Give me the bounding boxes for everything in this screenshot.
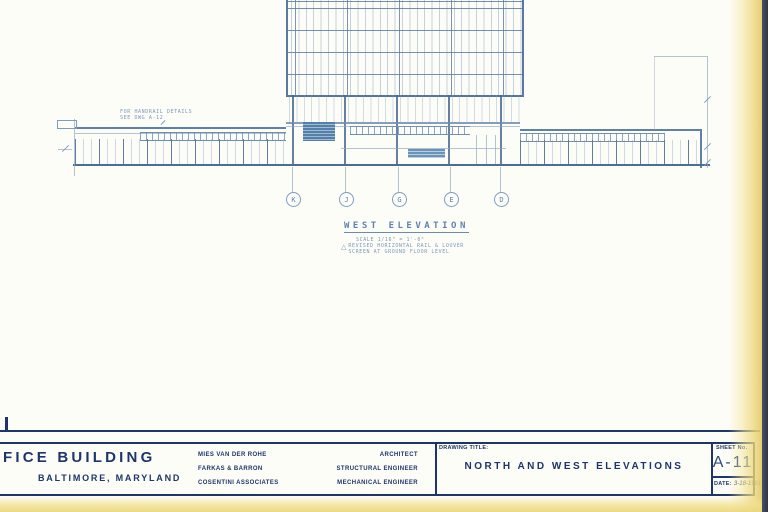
shaded-louver-panel	[408, 149, 445, 158]
podium-left-glazing	[75, 139, 286, 166]
title-block-bottom-border	[0, 494, 755, 496]
podium-right-glazing	[520, 140, 698, 166]
tower-column	[500, 95, 502, 165]
podium-left	[75, 127, 286, 168]
tower-column	[292, 95, 294, 165]
tower-column	[344, 95, 346, 165]
door-mullion	[476, 135, 477, 165]
grid-leader	[500, 167, 501, 192]
project-location: BALTIMORE, MARYLAND	[38, 473, 181, 483]
consultants-list: MIES VAN DER ROHE ARCHITECT FARKAS & BAR…	[198, 448, 418, 490]
drawing-title: NORTH AND WEST ELEVATIONS	[436, 461, 712, 472]
revision-triangle-icon: △	[341, 243, 346, 255]
grid-letter: G	[397, 196, 401, 204]
door-mullion	[495, 135, 496, 165]
west-elevation-drawing: FOR HANDRAIL DETAILS SEE DWG A-12 K J G …	[0, 0, 768, 430]
grid-letter: D	[499, 196, 503, 204]
consultant-name: COSENTINI ASSOCIATES	[198, 480, 279, 486]
sheet-border-rule	[0, 430, 760, 432]
scanned-drawing-sheet: { "drawing": { "elevation_title": "WEST …	[0, 0, 768, 512]
revision-note-line2: SCREEN AT GROUND FLOOR LEVEL	[348, 249, 464, 255]
consultant-role: MECHANICAL ENGINEER	[337, 480, 418, 486]
date-label: DATE:	[714, 481, 732, 487]
title-block: FICE BUILDING BALTIMORE, MARYLAND MIES V…	[0, 442, 755, 496]
consultant-role: ARCHITECT	[380, 452, 418, 458]
grid-leader	[398, 167, 399, 192]
sheet-number-label: SHEET No.	[716, 445, 747, 451]
grid-bubble-k: K	[286, 192, 301, 207]
right-ext-line	[654, 56, 655, 130]
sheet-number: A-11	[712, 454, 754, 472]
grid-leader	[345, 167, 346, 192]
page-edge-yellow-bottom	[0, 496, 768, 512]
grid-letter: J	[344, 196, 348, 204]
date-value: 3-18-1961	[734, 481, 761, 487]
consultant-row: FARKAS & BARRON STRUCTURAL ENGINEER	[198, 462, 418, 476]
grid-bubble-j: J	[339, 192, 354, 207]
revision-note: △ REVISED HORIZONTAL RAIL & LOUVER SCREE…	[341, 243, 464, 255]
sheet-cell-divider	[711, 476, 755, 478]
handrail-note: FOR HANDRAIL DETAILS SEE DWG A-12	[120, 109, 192, 121]
consultant-row: COSENTINI ASSOCIATES MECHANICAL ENGINEER	[198, 476, 418, 490]
lobby-mullions	[286, 95, 520, 122]
right-dim-hline	[654, 56, 707, 57]
date-row: DATE: 3-18-1961	[714, 481, 761, 487]
consultant-name: FARKAS & BARRON	[198, 466, 263, 472]
revision-note-text: REVISED HORIZONTAL RAIL & LOUVER SCREEN …	[348, 243, 464, 255]
podium-right	[520, 129, 702, 168]
grid-bubble-d: D	[494, 192, 509, 207]
title-block-top-border	[0, 442, 755, 444]
right-dim-vline	[707, 56, 708, 168]
grid-letter: E	[449, 196, 453, 204]
left-canopy-outline	[57, 120, 77, 129]
grid-bubble-e: E	[444, 192, 459, 207]
tower-curtain-wall	[286, 0, 524, 97]
project-name: FICE BUILDING	[3, 449, 155, 466]
tower-ground-floor	[286, 95, 520, 165]
consultant-role: STRUCTURAL ENGINEER	[337, 466, 419, 472]
consultant-name: MIES VAN DER ROHE	[198, 452, 267, 458]
grid-letter: K	[291, 196, 295, 204]
consultant-row: MIES VAN DER ROHE ARCHITECT	[198, 448, 418, 462]
scan-background-edge	[762, 0, 768, 512]
ground-line	[73, 164, 710, 166]
elevation-title: WEST ELEVATION	[344, 221, 469, 233]
shaded-wall-panel	[303, 122, 335, 141]
grid-leader	[292, 167, 293, 192]
handrail-note-line2: SEE DWG A-12	[120, 115, 192, 121]
door-mullion	[486, 135, 487, 165]
lobby-railing	[350, 126, 470, 135]
sheet-border-left-stub	[5, 417, 8, 431]
drawing-title-label: DRAWING TITLE:	[439, 445, 488, 451]
grid-leader	[450, 167, 451, 192]
grid-bubble-g: G	[392, 192, 407, 207]
